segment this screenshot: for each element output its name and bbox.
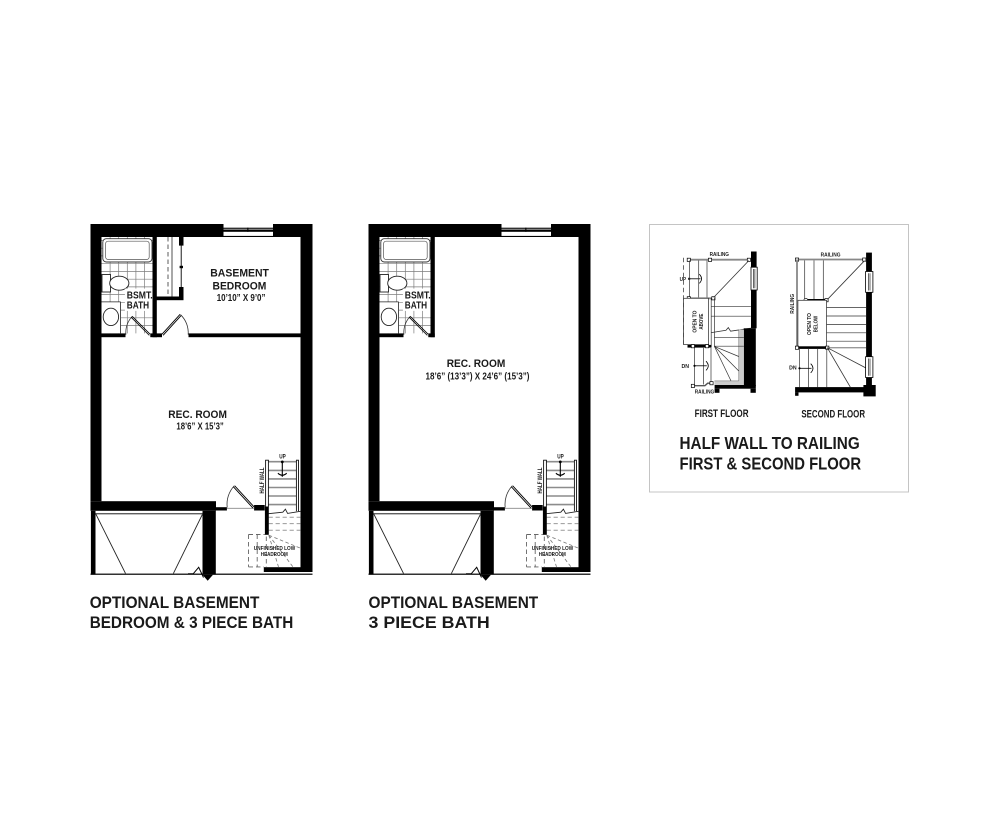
svg-text:RAILING: RAILING: [710, 252, 729, 258]
svg-text:BEDROOM: BEDROOM: [213, 281, 267, 293]
svg-text:BASEMENT: BASEMENT: [210, 267, 269, 279]
svg-text:SECOND FLOOR: SECOND FLOOR: [801, 408, 865, 420]
svg-text:3 PIECE BATH: 3 PIECE BATH: [369, 613, 490, 632]
svg-text:RAILING: RAILING: [790, 294, 796, 314]
svg-text:ABOVE: ABOVE: [699, 313, 705, 329]
svg-text:DN: DN: [682, 364, 690, 370]
svg-text:RAILING: RAILING: [821, 253, 841, 259]
svg-text:HALF WALL TO RAILING: HALF WALL TO RAILING: [680, 433, 860, 453]
svg-text:REC. ROOM: REC. ROOM: [447, 358, 506, 370]
svg-text:BEDROOM & 3 PIECE BATH: BEDROOM & 3 PIECE BATH: [90, 613, 294, 632]
svg-text:18’6” (13’3”) X 24’6” (15’3”): 18’6” (13’3”) X 24’6” (15’3”): [426, 371, 530, 382]
svg-text:OPTIONAL BASEMENT: OPTIONAL BASEMENT: [90, 593, 260, 612]
svg-text:DN: DN: [789, 366, 797, 372]
svg-text:OPEN TO: OPEN TO: [807, 312, 813, 335]
svg-text:FIRST FLOOR: FIRST FLOOR: [695, 408, 749, 420]
svg-text:RAILING: RAILING: [695, 390, 715, 396]
svg-text:BELOW: BELOW: [814, 315, 820, 332]
svg-text:18’6” X 15’3”: 18’6” X 15’3”: [176, 421, 223, 432]
svg-text:10’10” X 9’0”: 10’10” X 9’0”: [217, 293, 266, 304]
svg-text:REC. ROOM: REC. ROOM: [168, 409, 227, 421]
svg-text:FIRST & SECOND FLOOR: FIRST & SECOND FLOOR: [680, 453, 862, 473]
svg-text:OPTIONAL BASEMENT: OPTIONAL BASEMENT: [369, 593, 539, 612]
svg-text:UP: UP: [680, 277, 687, 283]
svg-text:OPEN TO: OPEN TO: [692, 310, 698, 333]
